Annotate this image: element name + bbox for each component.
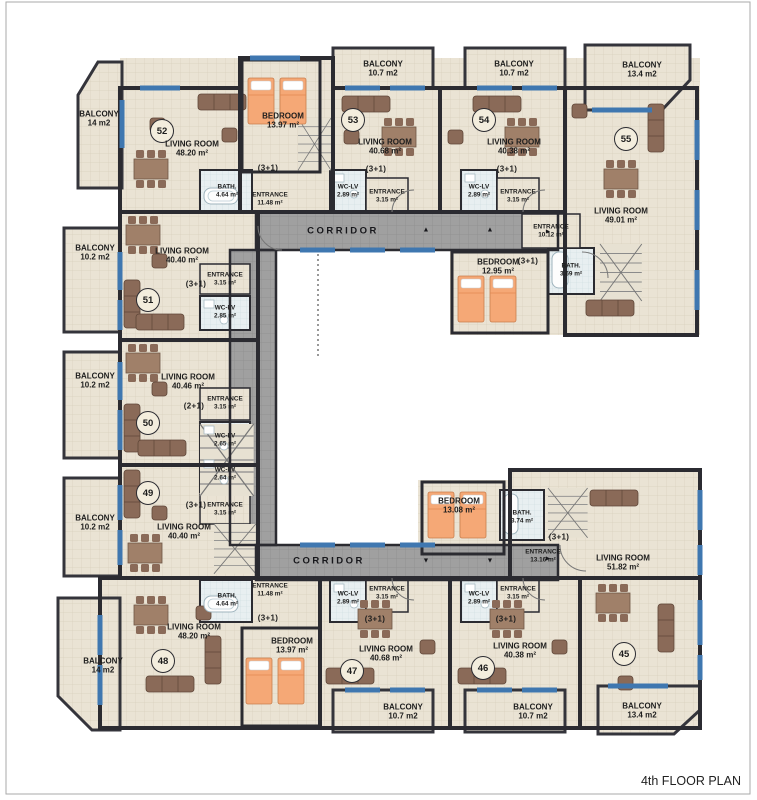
unit-51-living-room-label: LIVING ROOM40.40 m² [155, 247, 209, 266]
unit-46-balcony-label: BALCONY10.7 m2 [513, 703, 553, 722]
unit-50-type-label: (2+1) [184, 401, 204, 410]
unit-52-bedroom-label: BEDROOM13.97 m² [262, 112, 304, 131]
floor-plan-title: 4th FLOOR PLAN [641, 774, 741, 788]
unit-46-entrance-label: ENTRANCE3.15 m² [500, 585, 536, 600]
unit-48-number-badge: 48 [151, 649, 175, 673]
unit-48-living-room-label: LIVING ROOM48.20 m² [167, 623, 221, 642]
unit-45-balcony-label: BALCONY13.4 m2 [622, 702, 662, 721]
unit-50-entrance-label: ENTRANCE3.15 m² [207, 395, 243, 410]
unit-47-number-badge: 47 [340, 659, 364, 683]
unit-53-type-label: (3+1) [366, 164, 386, 173]
unit-49-type-label: (3+1) [186, 500, 206, 509]
unit-46-living-room-label: LIVING ROOM40.38 m² [493, 642, 547, 661]
unit-51-wc-label: WC-LV2.85 m² [214, 304, 236, 319]
unit-51-entrance-label: ENTRANCE3.15 m² [207, 271, 243, 286]
corridor-arrow-up-icon: ▲ [487, 227, 494, 234]
unit-52-living-room-label: LIVING ROOM48.20 m² [165, 140, 219, 159]
unit-45-bath-label: BATH.3.74 m² [511, 509, 533, 524]
corridor-arrow-down-icon: ▼ [487, 558, 494, 565]
corridor-arrow-up-icon: ▲ [423, 227, 430, 234]
unit-46-type-label: (3+1) [496, 614, 516, 623]
unit-55-bedroom-label: BEDROOM12.95 m² [477, 258, 519, 277]
unit-52-entrance-label: ENTRANCE11.48 m² [252, 191, 288, 206]
unit-52-type-label: (3+1) [258, 163, 278, 172]
unit-55-balcony-label: BALCONY13.4 m2 [622, 61, 662, 80]
unit-54-wc-label: WC-LV2.89 m² [468, 183, 490, 198]
unit-49-wc-label: WC-LV2.64 m² [214, 466, 236, 481]
unit-55-number-badge: 55 [614, 127, 638, 151]
unit-47-wc-label: WC-LV2.89 m² [337, 590, 359, 605]
unit-48-bath-label: BATH.4.64 m² [216, 592, 238, 607]
unit-55-living-room-label: LIVING ROOM49.01 m² [594, 207, 648, 226]
unit-45-entrance-label: ENTRANCE13.16 m² [525, 548, 561, 563]
unit-48-bedroom-label: BEDROOM13.97 m² [271, 637, 313, 656]
unit-51-type-label: (3+1) [186, 279, 206, 288]
corridor-arrow-right-icon: ► [545, 556, 552, 563]
unit-50-number-badge: 50 [136, 411, 160, 435]
unit-52-balcony-label: BALCONY14 m2 [79, 110, 119, 129]
corridor-arrow-right-icon: ► [545, 229, 552, 236]
unit-48-type-label: (3+1) [258, 613, 278, 622]
unit-53-wc-label: WC-LV2.89 m² [337, 183, 359, 198]
unit-49-number-badge: 49 [136, 481, 160, 505]
unit-51-balcony-label: BALCONY10.2 m2 [75, 244, 115, 263]
unit-51-number-badge: 51 [136, 288, 160, 312]
unit-54-entrance-label: ENTRANCE3.15 m² [500, 188, 536, 203]
unit-50-balcony-label: BALCONY10.2 m2 [75, 372, 115, 391]
unit-54-number-badge: 54 [472, 108, 496, 132]
unit-53-entrance-label: ENTRANCE3.15 m² [369, 188, 405, 203]
unit-50-living-room-label: LIVING ROOM40.46 m² [161, 373, 215, 392]
unit-47-balcony-label: BALCONY10.7 m2 [383, 703, 423, 722]
unit-47-type-label: (3+1) [365, 614, 385, 623]
unit-48-entrance-label: ENTRANCE11.48 m² [252, 582, 288, 597]
unit-54-living-room-label: LIVING ROOM40.38 m² [487, 138, 541, 157]
unit-47-living-room-label: LIVING ROOM40.68 m² [359, 645, 413, 664]
unit-47-entrance-label: ENTRANCE3.15 m² [369, 585, 405, 600]
unit-53-balcony-label: BALCONY10.7 m2 [363, 60, 403, 79]
unit-45-living-room-label: LIVING ROOM51.82 m² [596, 554, 650, 573]
unit-49-living-room-label: LIVING ROOM40.40 m² [157, 523, 211, 542]
unit-46-wc-label: WC-LV2.89 m² [468, 590, 490, 605]
unit-45-bedroom-label: BEDROOM13.08 m² [438, 497, 480, 516]
floor-plan-page: { "title": "4th FLOOR PLAN", "corridor":… [0, 0, 757, 800]
corridor-label-bottom: CORRIDOR [293, 556, 365, 567]
unit-54-type-label: (3+1) [497, 164, 517, 173]
unit-53-number-badge: 53 [341, 108, 365, 132]
unit-48-balcony-label: BALCONY14 m2 [83, 657, 123, 676]
corridor-arrow-down-icon: ▼ [423, 558, 430, 565]
unit-55-bath-label: BATH.3.69 m² [560, 262, 582, 277]
unit-52-bath-label: BATH.4.64 m² [216, 183, 238, 198]
unit-49-balcony-label: BALCONY10.2 m2 [75, 514, 115, 533]
unit-54-balcony-label: BALCONY10.7 m2 [494, 60, 534, 79]
corridor-label-top: CORRIDOR [307, 226, 379, 237]
unit-45-type-label: (3+1) [549, 532, 569, 541]
unit-55-type-label: (3+1) [518, 256, 538, 265]
unit-53-living-room-label: LIVING ROOM40.68 m² [358, 138, 412, 157]
unit-50-wc-label: WC-LV2.65 m² [214, 432, 236, 447]
unit-49-entrance-label: ENTRANCE3.15 m² [207, 501, 243, 516]
unit-45-number-badge: 45 [612, 642, 636, 666]
unit-46-number-badge: 46 [471, 656, 495, 680]
